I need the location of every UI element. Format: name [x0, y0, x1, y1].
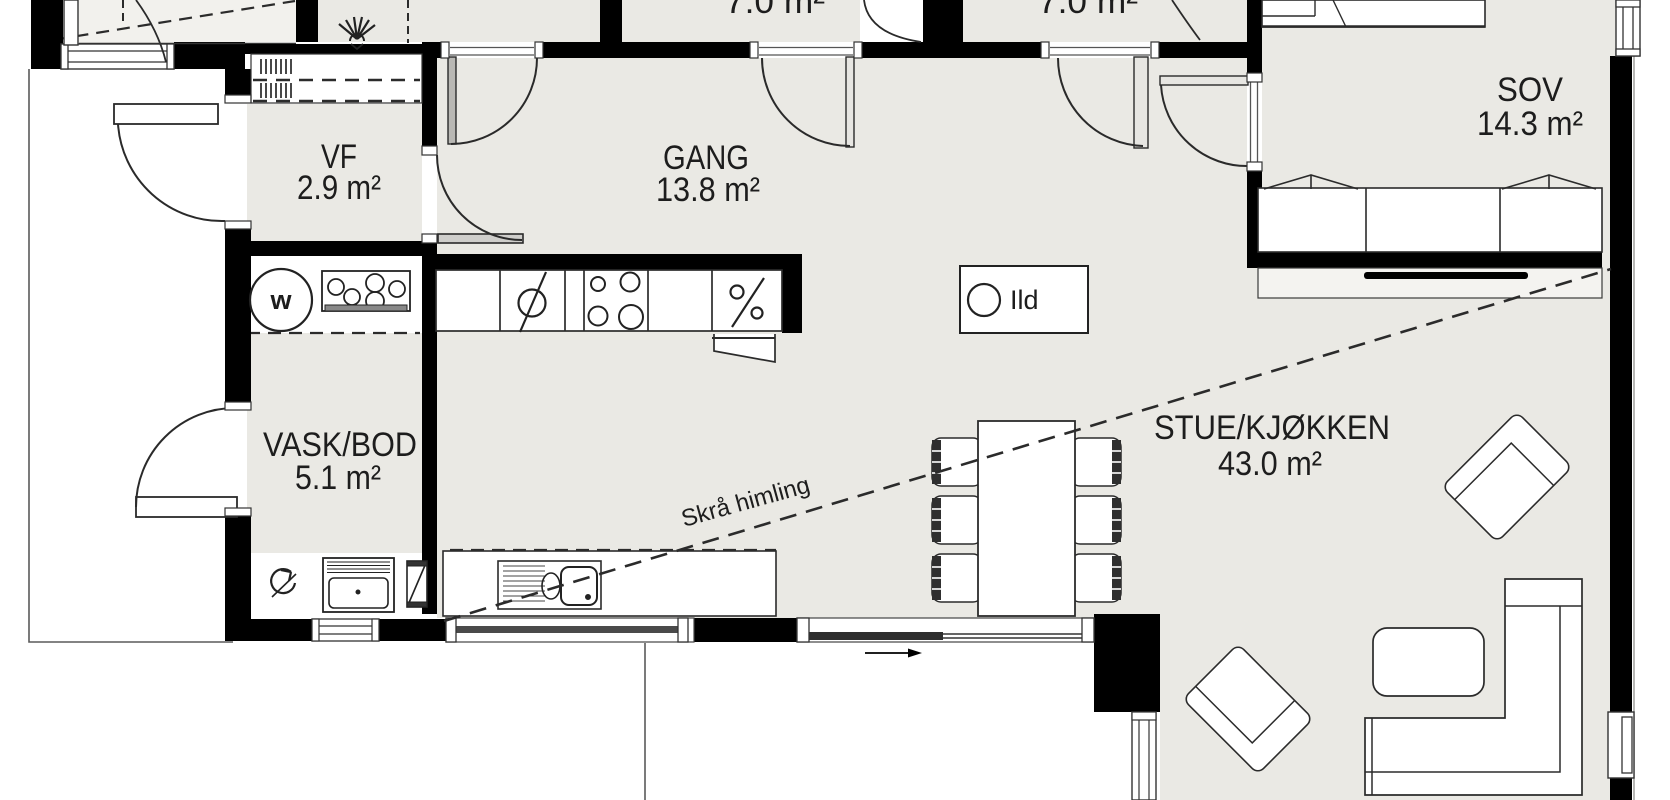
svg-text:w: w — [269, 285, 292, 315]
svg-text:5.1 m²: 5.1 m² — [295, 459, 381, 497]
svg-text:7.0 m²: 7.0 m² — [1038, 0, 1138, 21]
svg-text:STUE/KJØKKEN: STUE/KJØKKEN — [1154, 409, 1390, 447]
svg-text:13.8 m²: 13.8 m² — [656, 171, 760, 209]
svg-text:14.3 m²: 14.3 m² — [1477, 105, 1583, 143]
svg-text:2.9 m²: 2.9 m² — [297, 169, 381, 207]
svg-text:7.0 m²: 7.0 m² — [725, 0, 825, 21]
svg-text:43.0 m²: 43.0 m² — [1218, 445, 1322, 483]
svg-text:Ild: Ild — [1010, 285, 1039, 315]
svg-text:SOV: SOV — [1497, 71, 1563, 109]
